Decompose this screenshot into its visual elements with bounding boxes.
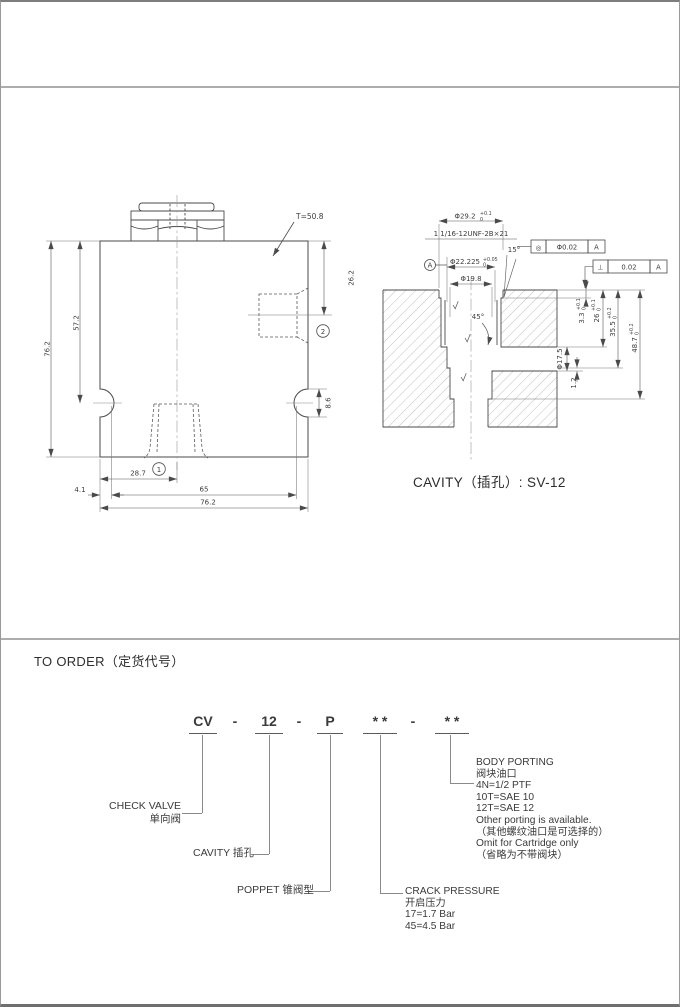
leader-line [450,735,451,783]
dim-hole-edge-offset: 4.1 [74,486,124,495]
code-model: CV [189,713,217,734]
locknut [131,203,224,241]
body-porting-note: Omit for Cartridge only [476,838,608,850]
svg-text:Φ0.02: Φ0.02 [557,243,577,251]
svg-text:Φ29.2: Φ29.2 [454,213,475,221]
code-separator: - [227,713,243,733]
svg-text:48.7: 48.7 [631,337,639,353]
fcf-perpendicularity: ⊥ 0.02 A [585,260,667,288]
svg-text:28.7: 28.7 [130,470,146,478]
svg-text:26.2: 26.2 [348,270,356,286]
crack-pressure-option: 45=4.5 Bar [405,921,500,933]
body-porting-note: Other porting is available. [476,815,608,827]
leader-line [450,783,474,784]
body-porting-note: （省略为不带阀块） [476,850,608,862]
leader-line [182,813,202,814]
svg-text:35.5: 35.5 [609,321,617,337]
dim-pilot-bore: Φ22.225 +0.05 0 [447,257,498,269]
svg-text:0: 0 [582,307,588,310]
svg-text:0: 0 [635,332,641,335]
code-poppet: P [317,713,343,734]
body-porting-subtitle: 阀块油口 [476,769,608,781]
dim-overall-height: 76.2 [44,241,52,457]
crack-pressure-option: 17=1.7 Bar [405,909,500,921]
front-view: 76.2 57.2 26.2 8.6 28.7 4.1 [44,195,356,512]
code-size: 12 [255,713,283,734]
bottom-port-poppet [144,404,208,458]
thread-spec: 1 1/16-12UNF-2B×21 [425,230,517,239]
dim-cross-port: Φ17.5 [556,347,567,371]
body-porting-block: BODY PORTING 阀块油口 4N=1/2 PTF 10T=SAE 10 … [476,757,608,861]
check-valve-label-zh: 单向阀 [96,813,181,826]
dim-depth-total: 48.7 +0.2 0 [629,290,641,399]
svg-text:65: 65 [200,486,209,494]
svg-text:T=50.8: T=50.8 [295,212,324,221]
cavity-label: CAVITY 插孔 [193,847,254,860]
dim-slot-width: 8.6 [319,389,333,417]
svg-text:0: 0 [480,217,483,223]
leader-line [380,735,381,893]
svg-text:26: 26 [593,313,601,322]
leader-line [330,735,331,891]
svg-text:4.1: 4.1 [74,486,85,494]
check-valve-label-en: CHECK VALVE [96,800,181,813]
svg-text:A: A [656,263,661,271]
dim-body-height: 57.2 [73,241,81,403]
dim-counterbore: Φ29.2 +0.1 0 [439,211,503,223]
dim-depth-counterbore: 3.3 +0.1 0 [576,281,588,324]
body-porting-note: （其他螺纹油口是可选择的） [476,827,608,839]
svg-text:1 1/16-12UNF-2B×21: 1 1/16-12UNF-2B×21 [434,230,509,238]
leader-line [380,893,403,894]
svg-text:8.6: 8.6 [325,397,333,409]
body-porting-option: 4N=1/2 PTF [476,780,608,792]
poppet-label: POPPET 锥阀型 [237,884,314,897]
svg-text:2: 2 [321,328,325,336]
port2-marker: 2 [317,325,330,338]
svg-text:◎: ◎ [536,244,542,252]
svg-text:45°: 45° [472,313,484,321]
dim-depth-pilot: 35.5 +0.2 0 [607,290,619,368]
svg-text:0: 0 [613,316,619,319]
crack-pressure-title: CRACK PRESSURE [405,886,500,898]
svg-text:57.2: 57.2 [73,315,81,331]
datum-a-flag: A [425,260,448,271]
check-valve-label: CHECK VALVE 单向阀 [96,800,181,825]
dim-land: 1.2 [570,357,578,389]
svg-text:1.2: 1.2 [570,377,578,388]
dim-overall-width: 76.2 [100,499,308,509]
datasheet-page: 76.2 57.2 26.2 8.6 28.7 4.1 [0,0,680,1007]
svg-text:0: 0 [483,262,486,268]
svg-text:⊥: ⊥ [598,264,604,272]
fcf-concentricity: ◎ Φ0.02 A [517,240,605,253]
svg-text:+0.1: +0.1 [576,298,582,310]
body-porting-title: BODY PORTING [476,757,608,769]
crack-pressure-block: CRACK PRESSURE 开启压力 17=1.7 Bar 45=4.5 Ba… [405,886,500,932]
svg-text:76.2: 76.2 [200,499,216,507]
svg-text:A: A [594,243,599,251]
torque-note: T=50.8 [273,212,324,256]
svg-text:+0.1: +0.1 [480,211,492,217]
leader-line [202,735,203,813]
svg-text:A: A [428,262,433,270]
svg-text:Φ19.8: Φ19.8 [460,275,481,283]
leader-line [269,735,270,854]
svg-text:+0.2: +0.2 [607,307,613,319]
svg-text:0: 0 [597,308,603,311]
order-heading: TO ORDER（定货代号） [34,651,185,670]
svg-text:1: 1 [157,466,161,474]
dim-port2-center: 26.2 [324,241,356,315]
svg-text:Φ22.225: Φ22.225 [450,258,480,266]
svg-text:+0.1: +0.1 [591,299,597,311]
port1-marker: 1 [153,463,166,476]
body-porting-option: 10T=SAE 10 [476,792,608,804]
svg-text:15°: 15° [508,246,520,254]
svg-text:0.02: 0.02 [621,263,636,271]
svg-text:+0.2: +0.2 [629,323,635,335]
body-porting-option: 12T=SAE 12 [476,803,608,815]
svg-text:76.2: 76.2 [44,341,52,357]
code-separator: - [291,713,307,733]
chamfer-angle-callout: 15° [504,246,520,297]
dim-depth-thread: 26 +0.1 0 [591,290,603,347]
technical-drawing: 76.2 57.2 26.2 8.6 28.7 4.1 [1,88,680,639]
dim-hole-spacing: 65 [112,486,297,496]
cavity-caption: CAVITY（插孔）: SV-12 [413,471,566,491]
code-separator: - [405,713,421,733]
crack-pressure-subtitle: 开启压力 [405,898,500,910]
dim-seat-bore: Φ19.8 [450,275,492,284]
side-port-2 [259,288,308,343]
code-crack-pressure: * * [363,713,397,734]
valve-body-outline [100,241,308,457]
code-body-porting: * * [435,713,469,734]
svg-text:3.3: 3.3 [578,312,586,323]
svg-text:Φ17.5: Φ17.5 [556,348,564,369]
cavity-view: Φ29.2 +0.1 0 1 1/16-12UNF-2B×21 Φ22.225 … [383,211,667,460]
svg-text:+0.05: +0.05 [483,257,498,263]
